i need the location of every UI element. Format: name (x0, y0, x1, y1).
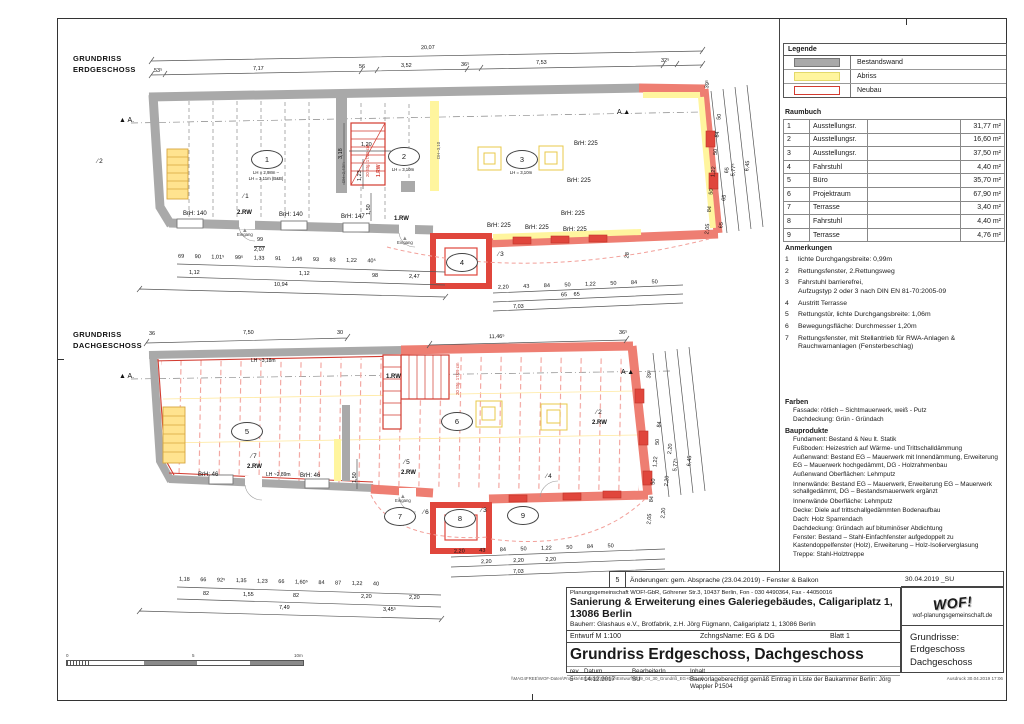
notes-column: Legende Bestandswand Abriss Neubau Raumb… (779, 19, 1006, 571)
dim-label: 1,50 (353, 472, 359, 483)
dim-label: 56 (359, 65, 365, 71)
legend-swatch-abriss (794, 72, 840, 81)
title-block: Planungsgemeinschaft WOF!-GbR, Göhrener … (566, 587, 901, 673)
sheet-name-line: Erdgeschoss (910, 644, 1003, 656)
rescue-stair-label: 1.RW (386, 374, 401, 380)
revision-table-header: revDatum BearbeiterInInhalt (567, 666, 900, 675)
dim-label: 1,12 (299, 272, 310, 278)
dim-label: 2,20 (409, 596, 420, 602)
note-ref-1: ∕1 (243, 194, 249, 201)
dg-door-swing-1 (245, 485, 262, 500)
section-marker-a-left: ▲ A. (119, 373, 134, 380)
eg-wall-top-bestand (149, 88, 641, 97)
stair-run-label: 20 Stg. 17/29 cm (456, 363, 461, 396)
meta-row: Entwurf M 1:100 ZchngsName: EG & DG Blat… (567, 631, 900, 643)
room-height-label: LH = 3,10m (510, 171, 532, 176)
dim-label: 3,18 (339, 148, 345, 159)
dim-chain: 65 65 (561, 293, 580, 299)
table-row: 1Ausstellungsr.31,77 m² (784, 120, 1005, 134)
room-height-label: LH ~2,89m (266, 473, 291, 478)
bauprodukte-line: Außenwand Oberflächen: Lehmputz (793, 471, 1004, 479)
dg-door-gap-1 (245, 476, 262, 487)
eg-plan-drawing (61, 31, 779, 331)
clearance-label: DH~2,43m (342, 162, 347, 183)
rescue-route-label: 2.RW (401, 470, 416, 476)
dim-label: 3,52 (401, 64, 412, 70)
legend-title: Legende (784, 44, 1006, 56)
eg-pier (401, 181, 415, 192)
rescue-route-label: 1.RW (394, 216, 409, 222)
plan-erdgeschoss: GRUNDRISS ERDGESCHOSS ▲ A. A ▲ ∕2 ∕1 ∕3 … (61, 31, 779, 331)
room-circle-4: 4 (446, 253, 478, 272)
dg-abriss-strip (334, 439, 341, 481)
dim-label: 1,23 (358, 170, 364, 181)
dim-total-right: 6,45 (687, 456, 694, 467)
sill-height-label: BrH: 140 (279, 212, 303, 218)
legend-item: Neubau (784, 84, 1006, 97)
list-item: 6Bewegungsfläche: Durchmesser 1,20m (785, 323, 1003, 331)
entrance-label: ▲Eingang (237, 229, 253, 238)
sill-height-label: BrH: 225 (561, 211, 585, 217)
table-row: 5Büro35,70 m² (784, 174, 1005, 188)
clearance-label: DH~3,10 (437, 142, 442, 159)
dim-label: 2,20 (361, 595, 372, 601)
note-ref-6: ∕6 (423, 510, 429, 517)
plan-title-eg-1: GRUNDRISS (73, 55, 122, 63)
room-circle-5: 5 (231, 422, 263, 441)
bauprodukte-line: Innenwände Oberfläche: Lehmputz (793, 498, 1004, 506)
list-item: 5Rettungstür, lichte Durchgangsbreite: 1… (785, 311, 1003, 319)
scale-label: 5 (192, 653, 195, 658)
page-title: Grundriss Erdgeschoss, Dachgeschoss (567, 643, 900, 666)
list-item: 4Austritt Terrasse (785, 300, 1003, 308)
divider (850, 70, 851, 83)
room-height-label: LH ~3,18m (251, 359, 276, 364)
print-date: Ausdruck 30.04.2019 17:06 (947, 676, 1003, 681)
bauprodukte-line: Treppe: Stahl-Holztreppe (793, 551, 1004, 559)
room-circle-7: 7 (384, 507, 416, 526)
note-ref-2: ∕2 (97, 159, 103, 166)
farben-line: Dachdeckung: Grün - Gründach (793, 416, 1004, 424)
room-height-label: LH = 2,98m – (253, 171, 279, 176)
room-height-label: LH = 3,11m (B&B) (249, 177, 284, 182)
dim-label: 39⁵ (705, 80, 712, 89)
scale-label: Entwurf M 1:100 (570, 633, 700, 640)
anmerkungen-title: Anmerkungen (785, 245, 832, 252)
sill-height-label: BrH: 46 (300, 473, 320, 479)
table-row: 8Fahrstuhl4,40 m² (784, 215, 1005, 229)
dim-label: 98 (372, 274, 378, 280)
rescue-stair-label: 1.RW (377, 165, 382, 177)
legend-label: Neubau (857, 87, 882, 94)
section-marker-a-right: A ▲ (617, 109, 630, 116)
rescue-route-label: 2.RW (592, 420, 607, 426)
room-height-label: LH = 3,10m (392, 168, 414, 173)
sill-height-label: BrH: 46 (198, 472, 218, 478)
door-size-label: 2,07 (254, 246, 265, 254)
file-path: \\MAG4FREE\WOF-Daten\Projekte\Brotfabrik… (511, 676, 703, 681)
sheet-name-line: Dachgeschoss (910, 657, 1003, 669)
dim-label: 7,17 (253, 67, 264, 73)
dim-label: 36 (149, 332, 155, 338)
eg-wall-top-neubau (639, 88, 705, 89)
entrance-label: ▲Eingang (397, 237, 413, 246)
note-ref-3: ∕3 (498, 252, 504, 259)
dim-total: 7,03 (513, 570, 524, 576)
eg-door-gap-2 (399, 224, 415, 235)
plan-title-eg-2: ERDGESCHOSS (73, 66, 136, 74)
note-ref-3: ∕3 (481, 508, 487, 515)
client-line: Bauherr: Glashaus e.V., Brotfabrik, z.H.… (567, 620, 900, 631)
revision-number: 5 (610, 572, 626, 588)
scale-label: 0 (66, 653, 69, 658)
dim-total-right: 6,45 (745, 161, 752, 172)
legend-item: Bestandswand (784, 56, 1006, 70)
dim-label: 7,50 (243, 331, 254, 337)
dg-wall-top-neubau (401, 346, 633, 350)
bauprodukte-line: Decke: Diele auf trittschallgedämmten Bo… (793, 507, 1004, 515)
dim-label: 2,47 (409, 275, 420, 281)
dim-label: 28 (625, 252, 631, 259)
revision-date: 30.04.2019 _SU (901, 571, 1004, 587)
dim-total: 7,49 (279, 606, 290, 612)
sheet-frame: GRUNDRISS ERDGESCHOSS ▲ A. A ▲ ∕2 ∕1 ∕3 … (57, 18, 1007, 701)
dim-label: 1,12 (189, 271, 200, 277)
stair-run-label: 20 Stg. 17/29 cm (366, 145, 371, 178)
sill-height-label: BrH: 147 (341, 214, 365, 220)
dim-label: 36⁵ (461, 63, 469, 69)
bauprodukte-title: Bauprodukte (785, 428, 1004, 435)
section-marker-a-right: A ▲ (621, 369, 634, 376)
revision-text: Änderungen: gem. Absprache (23.04.2019) … (626, 577, 819, 584)
dim-label: 36⁵ (619, 331, 627, 337)
room-circle-2: 2 (388, 147, 420, 166)
dim-label: 32⁵ (661, 59, 669, 65)
table-row: 2Ausstellungsr.16,60 m² (784, 133, 1005, 147)
entrance-label: ▲Eingang (395, 495, 411, 504)
room-circle-9: 9 (507, 506, 539, 525)
legend-swatch-neubau (794, 86, 840, 95)
scale-bar: 0 5 10m (66, 655, 302, 667)
note-ref-2: ∕2 (596, 410, 602, 417)
divider (850, 84, 851, 97)
table-row: 7Terrasse3,40 m² (784, 201, 1005, 215)
bauprodukte-line: Fenster: Bestand – Stahl-Einfachfenster … (793, 534, 1004, 550)
list-item: 7Rettungsfenster, mit Stellantrieb für R… (785, 335, 1003, 352)
note-ref-4: ∕4 (546, 474, 552, 481)
bauprodukte-line: Innenwände: Bestand EG – Mauerwerk, Erwe… (793, 481, 1004, 497)
bauprodukte-line: Fußboden: Heizestrich auf Wärme- und Tri… (793, 445, 1004, 453)
sill-height-label: BrH: 225 (567, 178, 591, 184)
logo-cell: WOF! wof-planungsgemeinschaft.de (901, 587, 1004, 626)
dim-label: 82 (203, 592, 209, 598)
room-circle-8: 8 (444, 509, 476, 528)
farben-title: Farben (785, 399, 1004, 406)
table-row: 9Terrasse4,76 m² (784, 228, 1005, 242)
bauprodukte-line: Fundament: Bestand & Neu lt. Statik (793, 436, 1004, 444)
legend-item: Abriss (784, 70, 1006, 84)
anmerkungen-list: 1lichte Durchgangsbreite: 0,99m 2Rettung… (785, 256, 1003, 355)
note-ref-5: ∕5 (404, 460, 410, 467)
sill-height-label: BrH: 140 (183, 211, 207, 217)
sill-height-label: BrH: 225 (525, 225, 549, 231)
sheet-number-label: Blatt 1 (830, 633, 897, 640)
bauprodukte-line: Dach: Holz Sparrendach (793, 516, 1004, 524)
list-item: 1lichte Durchgangsbreite: 0,99m (785, 256, 1003, 264)
list-item: 3Fahrstuhl barrierefrei, Aufzugstyp 2 od… (785, 279, 1003, 296)
rescue-route-label: 2.RW (237, 210, 252, 216)
dim-label: 39⁵ (647, 370, 654, 379)
door-size-label: 99 (257, 238, 263, 244)
sheet-name-line: Grundrisse: (910, 632, 1003, 644)
sill-height-label: BrH: 225 (574, 141, 598, 147)
scale-bar-segments (66, 660, 304, 666)
scale-label: 10m (294, 653, 303, 658)
dim-total: 3,45⁵ (383, 608, 396, 614)
dim-label: 1,55 (243, 593, 254, 599)
table-row: 4Fahrstuhl4,40 m² (784, 160, 1005, 174)
bauprodukte-line: Dachdeckung: Gründach auf bituminöser Ab… (793, 525, 1004, 533)
rescue-route-label: 2.RW (247, 464, 262, 470)
dim-label: 30 (337, 331, 343, 337)
dim-label: 11,46⁵ (489, 335, 505, 341)
dim-label: 1,50 (367, 204, 373, 215)
legend-label: Bestandswand (857, 59, 903, 66)
legend-label: Abriss (857, 73, 876, 80)
dim-total-top: 20,07 (421, 46, 435, 52)
wof-logo: WOF! (932, 592, 973, 612)
drawing-sheet: GRUNDRISS ERDGESCHOSS ▲ A. A ▲ ∕2 ∕1 ∕3 … (0, 0, 1024, 724)
section-marker-a-left: ▲ A. (119, 117, 134, 124)
room-circle-1: 1 (251, 150, 283, 169)
sill-height-label: BrH: 225 (563, 227, 587, 233)
room-circle-6: 6 (441, 412, 473, 431)
sill-height-label: BrH: 225 (487, 223, 511, 229)
plan-title-dg-2: DACHGESCHOSS (73, 342, 142, 350)
legend: Legende Bestandswand Abriss Neubau (783, 43, 1007, 98)
dg-wall-top-bestand (149, 350, 403, 355)
materials-section: Farben Fassade: rötlich – Sichtmauerwerk… (785, 395, 1004, 561)
dim-label: 82 (293, 594, 299, 600)
divider (850, 56, 851, 69)
project-line: Sanierung & Erweiterung eines Galeriegeb… (567, 596, 900, 620)
bauprodukte-line: Außenwand: Bestand EG – Mauerwerk mit In… (793, 454, 1004, 470)
sheet-name-cell: Grundrisse: Erdgeschoss Dachgeschoss (901, 626, 1004, 673)
table-row: 3Ausstellungsr.37,50 m² (784, 147, 1005, 161)
table-row: 6Projektraum67,90 m² (784, 187, 1005, 201)
raumbuch-title: Raumbuch (785, 109, 821, 116)
firm-line: Planungsgemeinschaft WOF!-GbR, Göhrener … (567, 588, 900, 596)
eg-stair-abriss (167, 149, 188, 199)
plan-title-dg-1: GRUNDRISS (73, 331, 122, 339)
fold-mark (532, 694, 533, 700)
website-label: wof-planungsgemeinschaft.de (913, 613, 993, 619)
drawing-name-label: ZchngsName: EG & DG (700, 633, 830, 640)
dim-label: 1,20 (361, 143, 372, 149)
list-item: 2Rettungsfenster, 2.Rettungsweg (785, 268, 1003, 276)
farben-line: Fassade: rötlich – Sichtmauerwerk, weiß … (793, 407, 1004, 415)
legend-swatch-bestand (794, 58, 840, 67)
dg-wall-inner (342, 405, 350, 481)
dim-total-bottom: 10,94 (274, 283, 288, 289)
room-circle-3: 3 (506, 150, 538, 169)
dim-label: 53⁵ (154, 69, 162, 75)
dim-label: 7,53 (536, 61, 547, 67)
dg-stair-abriss (163, 407, 185, 463)
raumbuch-table: 1Ausstellungsr.31,77 m² 2Ausstellungsr.1… (783, 119, 1005, 242)
dim-total: 7,03 (513, 305, 524, 311)
note-ref-7: ∕7 (251, 454, 257, 461)
